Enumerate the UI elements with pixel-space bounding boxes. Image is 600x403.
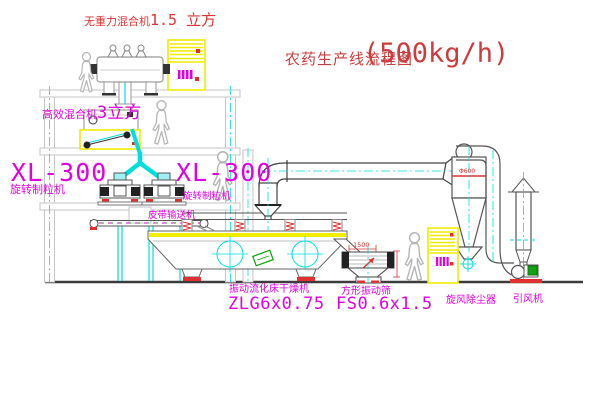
- label-zero-gravity-mixer: 无重力混合机1.5 立方: [84, 12, 216, 28]
- label-cyclone: 旋风除尘器: [446, 296, 496, 306]
- fan-motor: [528, 266, 537, 275]
- diagram-capacity: (500kg/h): [363, 40, 509, 67]
- flow-diagram-canvas: Φ600: [0, 0, 600, 403]
- label-granulator-right-name: 旋转制粒机: [183, 192, 231, 202]
- cyclone-dim-text: Φ600: [459, 168, 475, 175]
- worker-figure-2: [153, 101, 169, 144]
- exhaust-duct: [255, 157, 454, 220]
- dryer-yellow-band: [149, 233, 346, 237]
- label-screen-model: FS0.6x1.5: [336, 296, 433, 313]
- zero-gravity-mixer: [90, 45, 170, 110]
- control-cabinet-right: [428, 228, 458, 283]
- label-dryer-model: ZLG6x0.75: [228, 296, 325, 313]
- induced-draft-fan: [510, 265, 542, 283]
- cyclone-separator: Φ600: [452, 144, 522, 277]
- label-granulator-right-model: XL-300: [176, 160, 272, 185]
- control-cabinet-top: [168, 40, 205, 90]
- label-fan: 引风机: [513, 295, 543, 305]
- label-high-efficiency-mixer: 高效混合机3立方: [42, 105, 141, 122]
- screen-dim-text: 1500: [353, 241, 370, 249]
- label-granulator-left-name: 旋转制粒机: [10, 184, 65, 195]
- mixer-nozzles: [108, 45, 146, 57]
- label-granulator-left-model: XL-300: [11, 160, 107, 185]
- worker-figure-4: [405, 233, 423, 280]
- square-screen: 1500: [334, 239, 400, 284]
- fan-base: [510, 279, 542, 283]
- label-belt-conveyor: 皮带输送机: [148, 211, 196, 221]
- worker-figure-1: [79, 53, 94, 92]
